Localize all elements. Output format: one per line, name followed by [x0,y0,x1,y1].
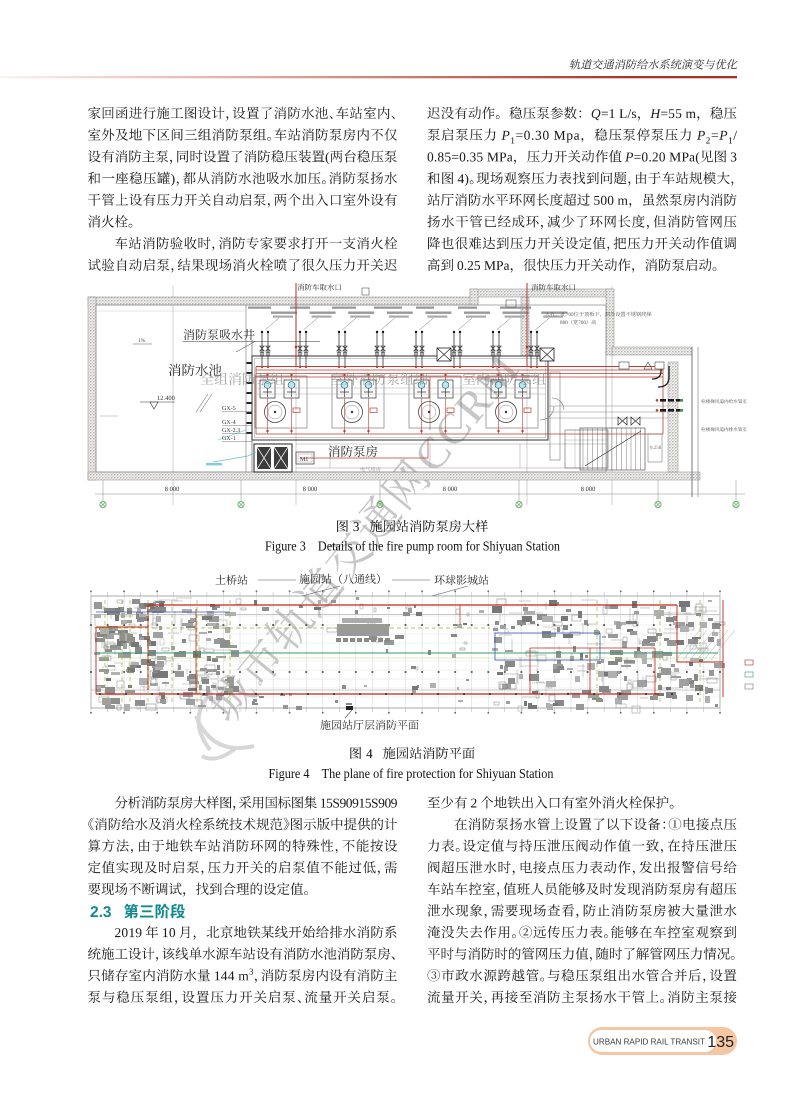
svg-text:Figure 4 The plane of fire: Figure 4 The plane of fire protection fo… [269,766,554,781]
svg-text:Figure 3 Details of the fir: Figure 3 Details of the fire pump room f… [265,539,560,554]
svg-text:135: 135 [707,1034,734,1051]
svg-text:URBAN RAPID RAIL TRANSIT: URBAN RAPID RAIL TRANSIT [593,1037,706,1047]
